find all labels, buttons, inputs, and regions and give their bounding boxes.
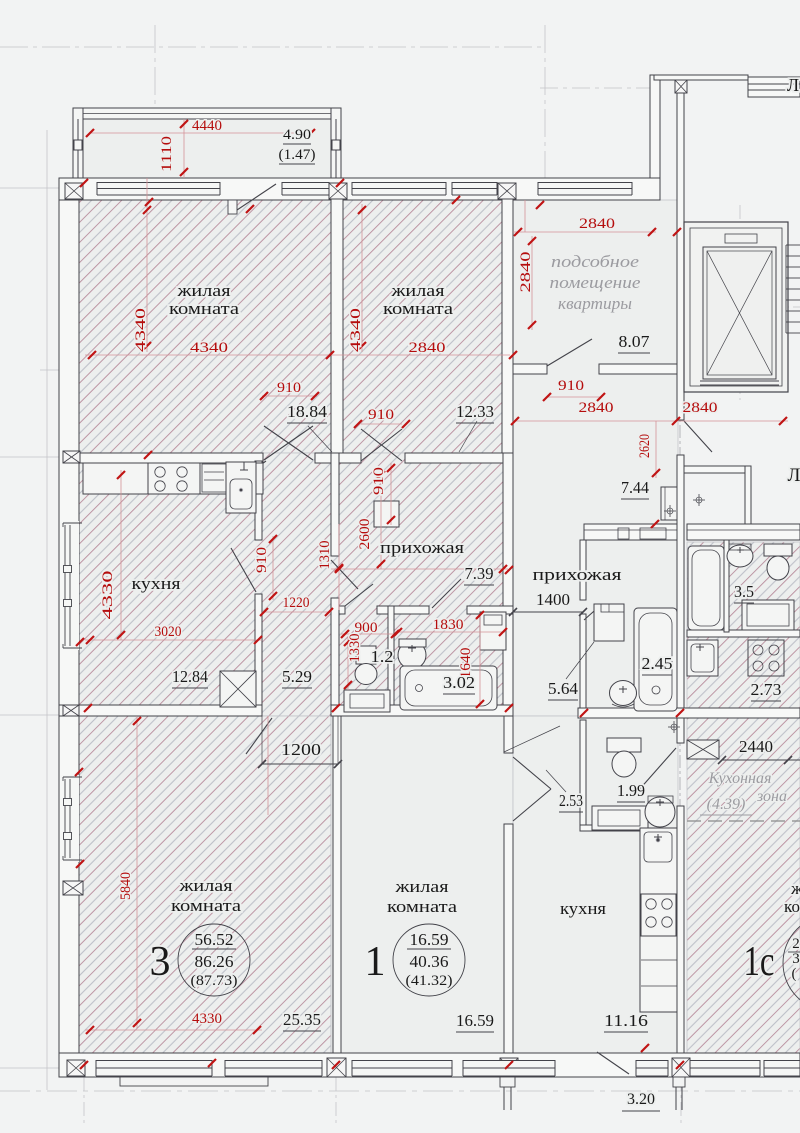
svg-text:2: 2 xyxy=(792,936,800,952)
svg-text:3: 3 xyxy=(150,939,171,985)
svg-text:жилая: жилая xyxy=(394,877,448,896)
svg-text:1с: 1с xyxy=(744,939,775,985)
svg-text:прихожая: прихожая xyxy=(380,538,464,557)
svg-text:ж: ж xyxy=(790,879,800,898)
svg-text:12.84: 12.84 xyxy=(172,667,208,686)
svg-text:комната: комната xyxy=(169,299,240,318)
svg-text:4440: 4440 xyxy=(192,118,222,134)
svg-text:56.52: 56.52 xyxy=(195,930,234,949)
svg-text:2.73: 2.73 xyxy=(751,680,782,699)
svg-text:2840: 2840 xyxy=(518,252,534,293)
svg-text:1830: 1830 xyxy=(433,617,464,633)
svg-text:8.07: 8.07 xyxy=(619,332,651,351)
svg-text:4.90: 4.90 xyxy=(283,127,311,143)
svg-text:910: 910 xyxy=(368,407,394,423)
svg-text:2440: 2440 xyxy=(739,737,773,756)
svg-text:4330: 4330 xyxy=(192,1011,222,1027)
svg-text:1310: 1310 xyxy=(317,541,333,570)
svg-text:4340: 4340 xyxy=(190,340,228,356)
svg-text:1.2: 1.2 xyxy=(371,647,394,666)
svg-text:(41.32): (41.32) xyxy=(406,973,453,989)
svg-text:комната: комната xyxy=(383,299,454,318)
svg-text:1200: 1200 xyxy=(281,740,321,759)
svg-text:910: 910 xyxy=(254,547,270,573)
svg-text:3.02: 3.02 xyxy=(443,673,475,692)
svg-text:ко: ко xyxy=(784,897,800,916)
svg-text:2.53: 2.53 xyxy=(559,791,583,810)
svg-text:подсобное: подсобное xyxy=(551,252,640,271)
svg-text:11.16: 11.16 xyxy=(604,1011,648,1030)
svg-text:910: 910 xyxy=(371,467,387,495)
svg-text:зона: зона xyxy=(756,788,787,805)
svg-text:2840: 2840 xyxy=(579,216,615,232)
svg-text:Л: Л xyxy=(787,75,799,95)
svg-text:1.99: 1.99 xyxy=(617,781,645,800)
svg-text:18.84: 18.84 xyxy=(287,402,328,421)
svg-text:жилая: жилая xyxy=(390,281,444,300)
svg-text:1220: 1220 xyxy=(283,595,310,611)
svg-text:12.33: 12.33 xyxy=(456,402,494,421)
svg-text:910: 910 xyxy=(277,380,301,396)
svg-text:25.35: 25.35 xyxy=(283,1010,321,1029)
svg-text:2840: 2840 xyxy=(683,400,718,416)
svg-text:(1.47): (1.47) xyxy=(279,147,316,163)
svg-text:4340: 4340 xyxy=(133,308,149,352)
svg-text:прихожая: прихожая xyxy=(533,565,622,584)
svg-text:1: 1 xyxy=(365,939,386,985)
svg-text:86.26: 86.26 xyxy=(195,952,234,971)
svg-text:помещение: помещение xyxy=(550,273,642,292)
svg-text:5.64: 5.64 xyxy=(548,679,579,698)
svg-text:1330: 1330 xyxy=(347,634,363,663)
svg-text:7.39: 7.39 xyxy=(465,564,494,583)
svg-text:2.45: 2.45 xyxy=(642,654,673,673)
svg-text:3: 3 xyxy=(792,951,800,967)
svg-text:1400: 1400 xyxy=(536,590,570,609)
svg-text:5840: 5840 xyxy=(118,872,134,900)
svg-text:2600: 2600 xyxy=(357,519,373,550)
svg-text:3020: 3020 xyxy=(155,624,182,640)
svg-text:5.29: 5.29 xyxy=(282,667,312,686)
svg-text:910: 910 xyxy=(558,378,584,394)
svg-text:4330: 4330 xyxy=(100,571,116,620)
svg-text:3.20: 3.20 xyxy=(627,1091,655,1108)
svg-text:2620: 2620 xyxy=(637,434,653,458)
svg-text:кухня: кухня xyxy=(560,899,606,918)
svg-text:2840: 2840 xyxy=(579,400,614,416)
svg-text:квартиры: квартиры xyxy=(558,294,632,313)
svg-text:40.36: 40.36 xyxy=(410,952,449,971)
svg-text:(: ( xyxy=(792,966,797,982)
svg-text:4340: 4340 xyxy=(348,308,364,352)
svg-text:кухня: кухня xyxy=(132,574,181,593)
svg-text:3.5: 3.5 xyxy=(734,582,754,601)
svg-text:16.59: 16.59 xyxy=(456,1011,494,1030)
svg-text:Кухонная: Кухонная xyxy=(708,770,772,787)
svg-text:комната: комната xyxy=(171,896,242,915)
svg-text:жилая: жилая xyxy=(176,281,230,300)
svg-text:комната: комната xyxy=(387,897,458,916)
svg-text:1110: 1110 xyxy=(159,136,175,172)
svg-text:16.59: 16.59 xyxy=(410,930,449,949)
svg-text:7.44: 7.44 xyxy=(621,478,649,497)
svg-text:жилая: жилая xyxy=(178,876,232,895)
svg-text:(87.73): (87.73) xyxy=(191,973,238,989)
svg-text:Л: Л xyxy=(788,465,800,486)
svg-text:2840: 2840 xyxy=(409,340,446,356)
svg-text:(4.39): (4.39) xyxy=(707,796,746,813)
